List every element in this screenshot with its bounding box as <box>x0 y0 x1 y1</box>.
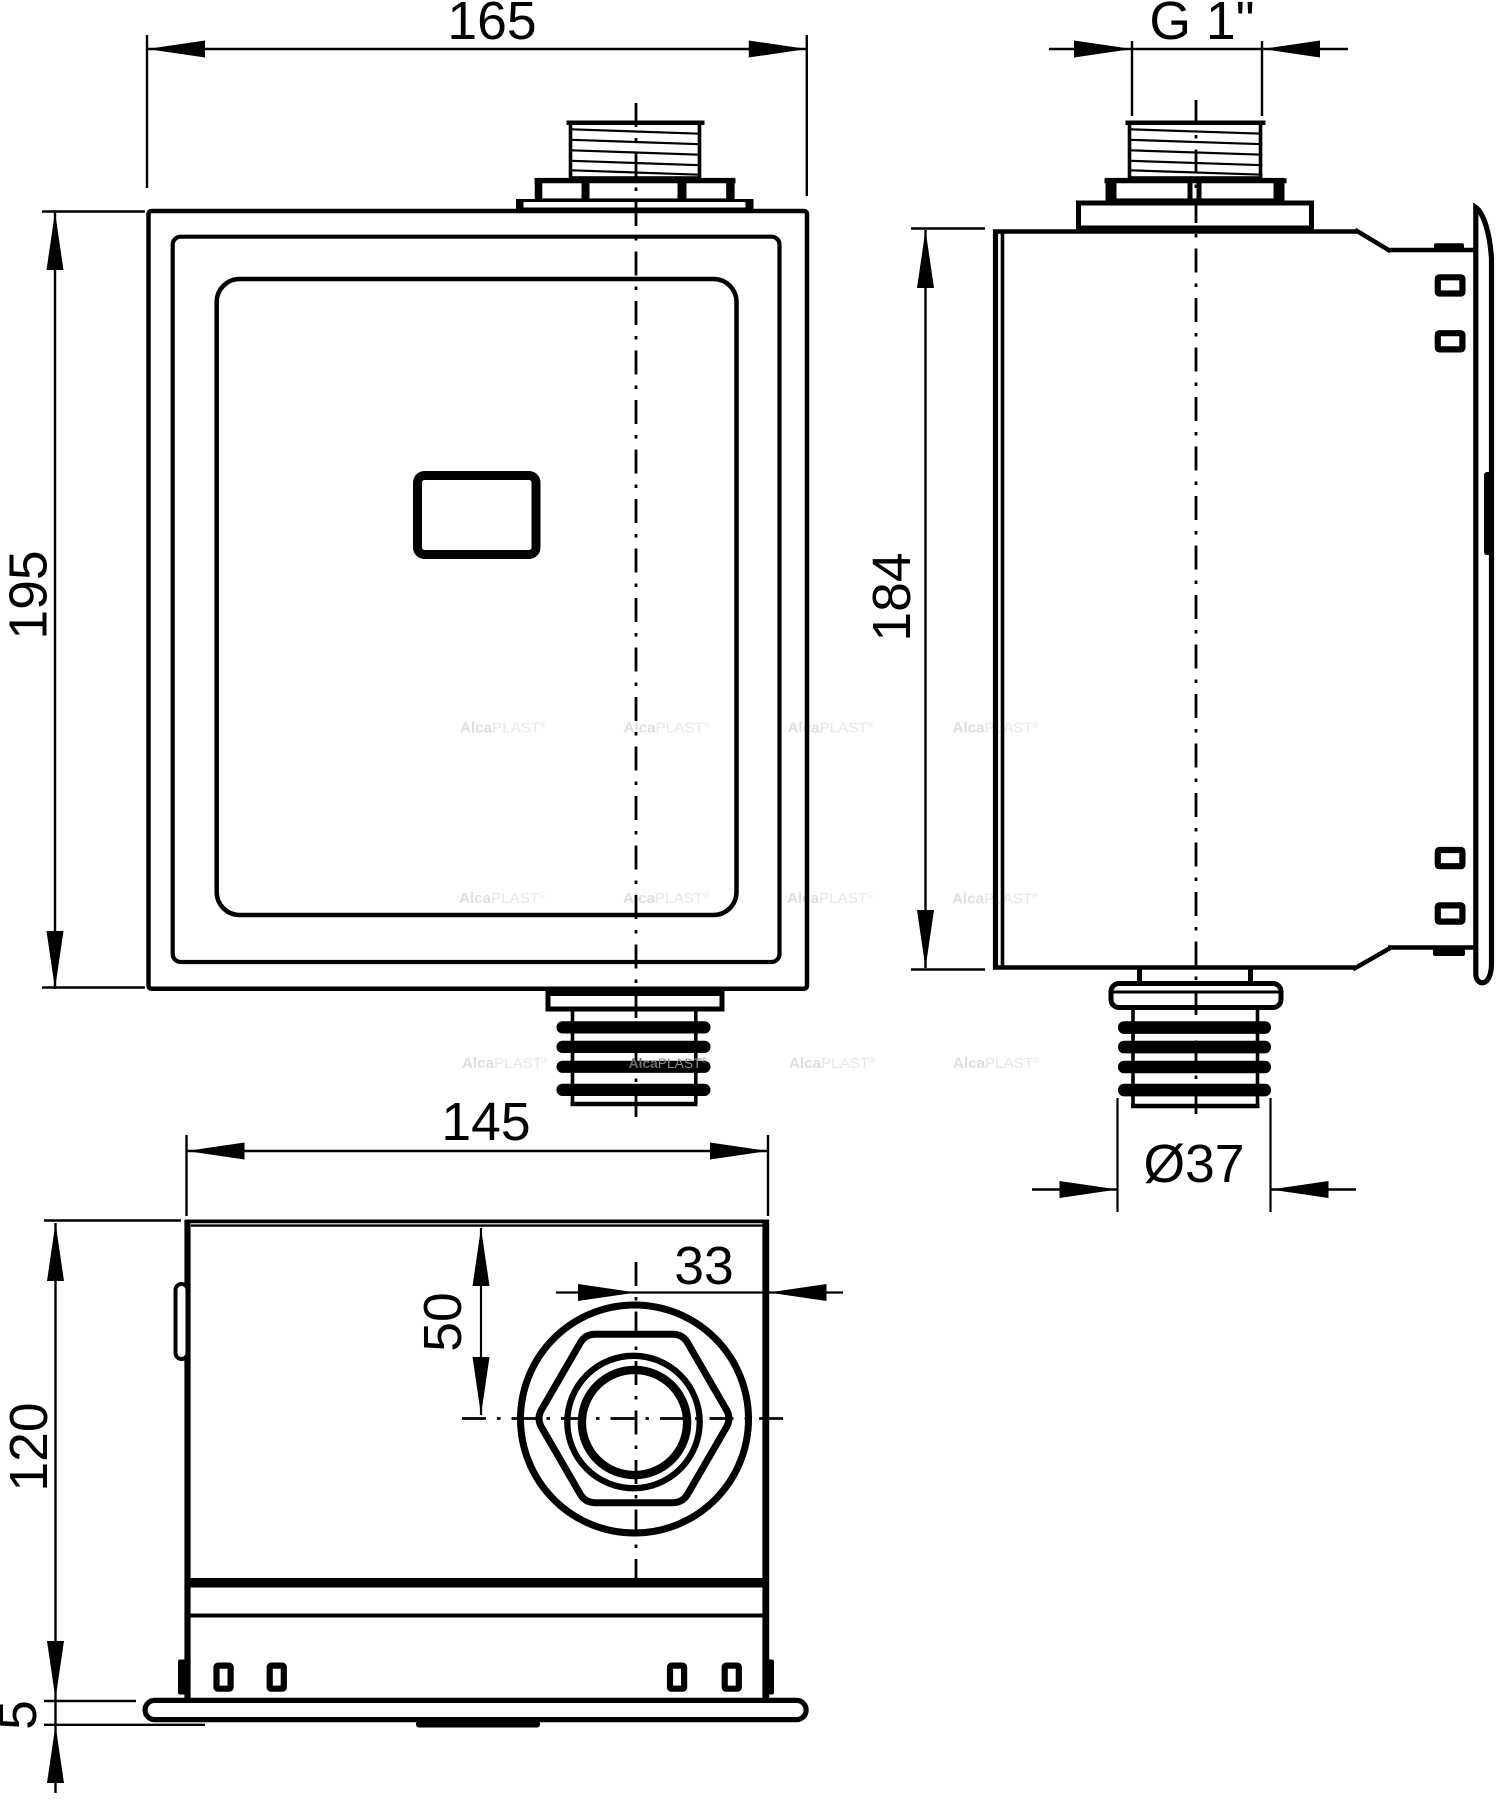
svg-text:33: 33 <box>674 1237 734 1296</box>
svg-text:5: 5 <box>0 1700 48 1730</box>
svg-text:AlcaPLAST®: AlcaPLAST® <box>462 1055 548 1072</box>
svg-text:50: 50 <box>414 1292 473 1352</box>
svg-text:AlcaPLAST®: AlcaPLAST® <box>460 720 546 737</box>
svg-text:195: 195 <box>0 550 59 639</box>
svg-text:120: 120 <box>0 1402 59 1491</box>
svg-text:AlcaPLAST®: AlcaPLAST® <box>789 1055 875 1072</box>
svg-text:Ø37: Ø37 <box>1143 1135 1244 1194</box>
svg-text:165: 165 <box>447 0 536 51</box>
svg-text:145: 145 <box>441 1093 530 1152</box>
svg-text:AlcaPLAST®: AlcaPLAST® <box>787 720 873 737</box>
svg-text:AlcaPLAST®: AlcaPLAST® <box>629 1056 708 1071</box>
svg-text:AlcaPLAST®: AlcaPLAST® <box>787 890 873 907</box>
svg-text:184: 184 <box>863 552 922 641</box>
svg-text:G 1": G 1" <box>1149 0 1254 51</box>
svg-text:AlcaPLAST®: AlcaPLAST® <box>953 1055 1039 1072</box>
svg-text:AlcaPLAST®: AlcaPLAST® <box>459 890 545 907</box>
